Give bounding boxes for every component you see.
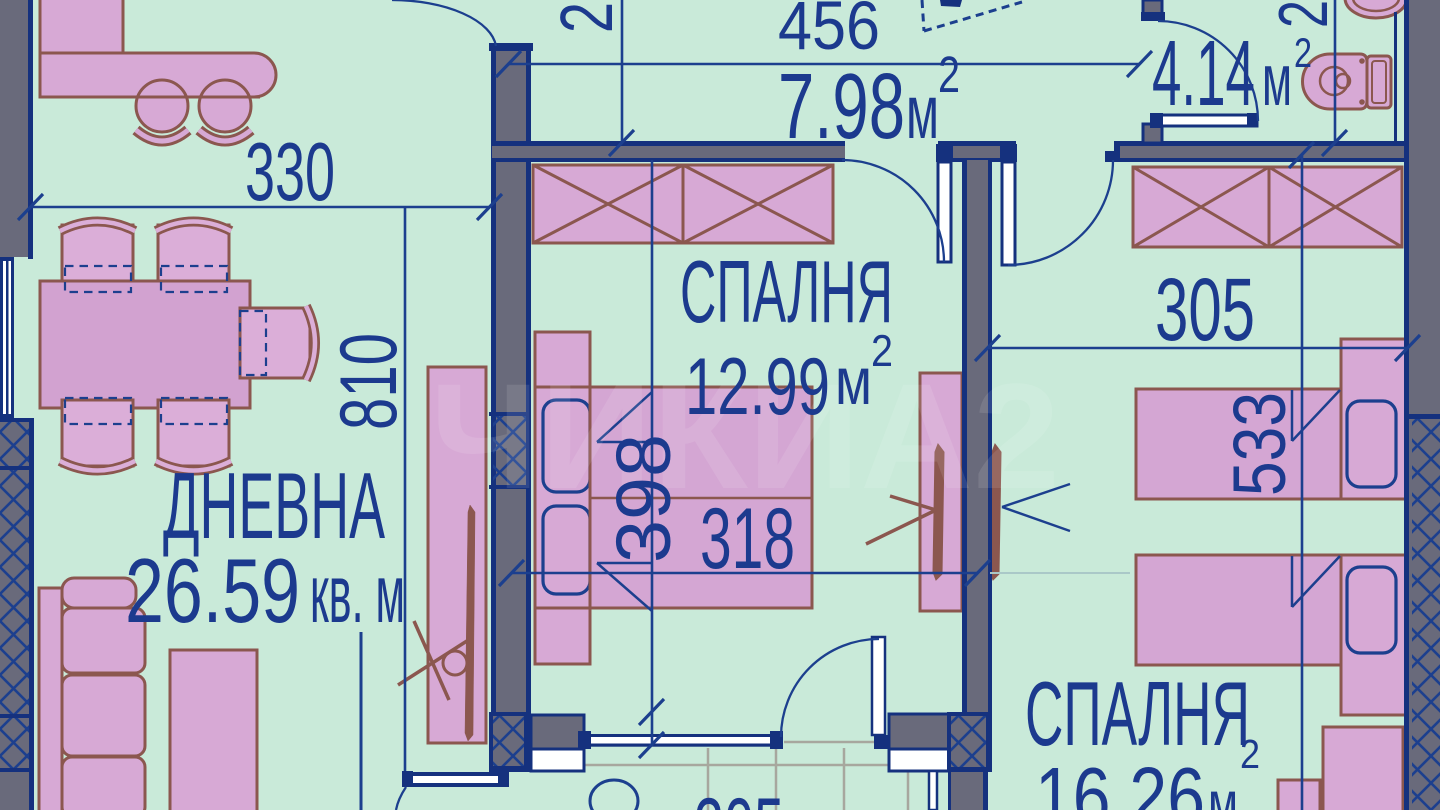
svg-text:810: 810 xyxy=(323,333,413,430)
svg-text:2: 2 xyxy=(1294,29,1312,76)
svg-text:7.98: 7.98 xyxy=(778,54,905,158)
svg-text:16.26: 16.26 xyxy=(1035,751,1205,810)
svg-text:2: 2 xyxy=(938,46,960,103)
svg-text:кв. м: кв. м xyxy=(310,548,405,641)
svg-text:2: 2 xyxy=(871,325,893,375)
svg-text:305: 305 xyxy=(1155,260,1255,359)
svg-text:СПАЛНЯ: СПАЛНЯ xyxy=(680,244,893,341)
svg-text:398: 398 xyxy=(601,434,687,563)
svg-text:м: м xyxy=(835,343,872,419)
svg-text:318: 318 xyxy=(700,490,795,587)
svg-text:4.14: 4.14 xyxy=(1152,22,1255,126)
svg-text:м: м xyxy=(1262,39,1292,121)
svg-text:2: 2 xyxy=(1264,0,1342,28)
svg-text:м: м xyxy=(906,71,939,155)
svg-text:12.99: 12.99 xyxy=(685,342,830,432)
svg-text:330: 330 xyxy=(245,126,335,218)
svg-text:26.59: 26.59 xyxy=(125,539,300,641)
svg-text:2: 2 xyxy=(545,2,628,33)
svg-text:м: м xyxy=(1208,770,1238,810)
svg-text:СПАЛНЯ: СПАЛНЯ xyxy=(1025,663,1250,765)
svg-text:533: 533 xyxy=(1218,392,1301,496)
svg-text:2: 2 xyxy=(1240,732,1260,777)
svg-text:305: 305 xyxy=(694,781,784,810)
